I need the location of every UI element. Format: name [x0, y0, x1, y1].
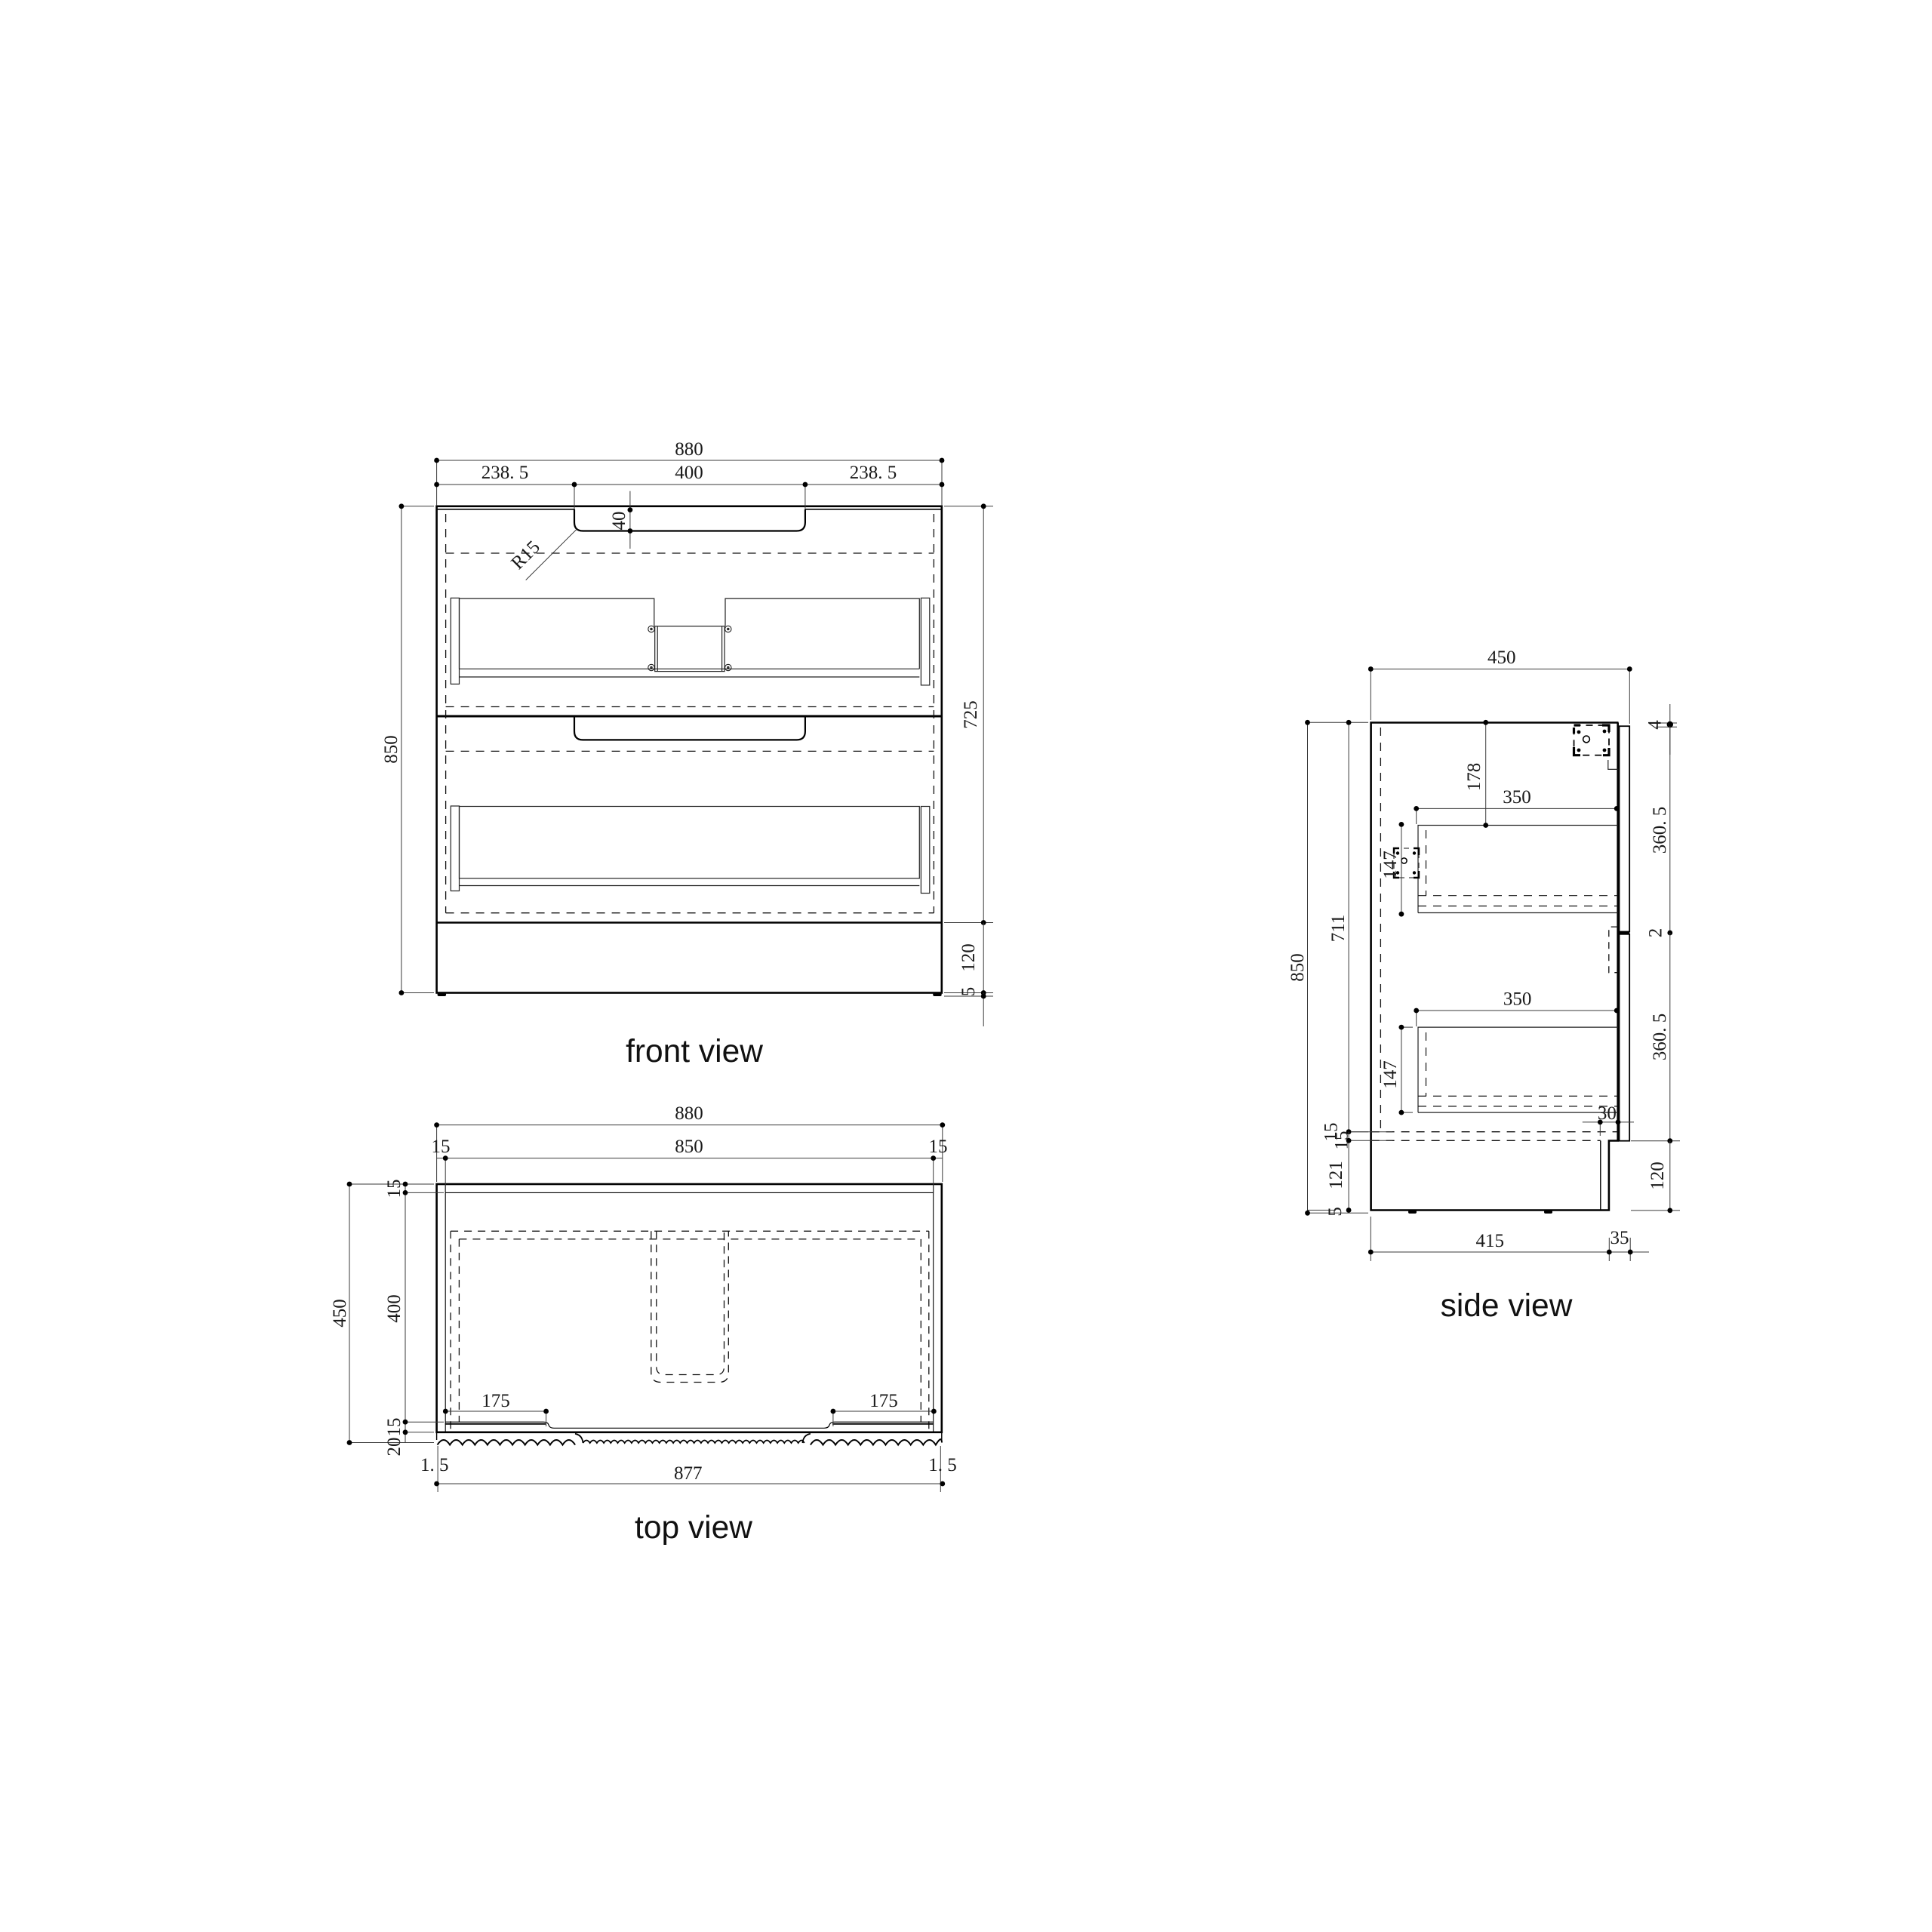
- svg-text:15: 15: [384, 1180, 405, 1198]
- svg-text:415: 415: [1476, 1231, 1505, 1251]
- svg-text:350: 350: [1503, 787, 1531, 808]
- svg-text:40: 40: [609, 512, 629, 531]
- svg-text:450: 450: [1487, 648, 1516, 668]
- svg-text:35: 35: [1611, 1228, 1629, 1248]
- svg-text:360. 5: 360. 5: [1650, 807, 1670, 854]
- svg-text:178: 178: [1464, 763, 1484, 792]
- svg-text:360. 5: 360. 5: [1650, 1014, 1670, 1061]
- svg-text:side view: side view: [1441, 1288, 1573, 1324]
- svg-text:147: 147: [1380, 1060, 1401, 1089]
- svg-text:5: 5: [958, 987, 979, 997]
- svg-text:850: 850: [381, 735, 401, 764]
- svg-text:238. 5: 238. 5: [481, 463, 529, 483]
- svg-text:877: 877: [674, 1463, 703, 1484]
- svg-text:4: 4: [1645, 720, 1666, 730]
- svg-text:15: 15: [432, 1137, 451, 1157]
- svg-text:120: 120: [1647, 1161, 1668, 1190]
- svg-text:top view: top view: [635, 1510, 752, 1546]
- svg-text:450: 450: [330, 1299, 350, 1327]
- svg-text:147: 147: [1380, 851, 1401, 879]
- svg-text:880: 880: [675, 439, 703, 460]
- svg-text:725: 725: [961, 700, 981, 729]
- svg-text:R15: R15: [507, 537, 544, 574]
- svg-text:400: 400: [675, 463, 703, 483]
- svg-text:15: 15: [929, 1137, 948, 1157]
- svg-text:30: 30: [1598, 1103, 1617, 1124]
- svg-text:15: 15: [1332, 1131, 1352, 1150]
- svg-text:1. 5: 1. 5: [928, 1455, 957, 1475]
- svg-text:711: 711: [1328, 915, 1349, 943]
- svg-text:175: 175: [481, 1391, 510, 1411]
- svg-text:238. 5: 238. 5: [850, 463, 897, 483]
- svg-text:880: 880: [675, 1103, 703, 1124]
- svg-text:850: 850: [1287, 953, 1308, 982]
- svg-text:5: 5: [1325, 1207, 1346, 1217]
- svg-text:175: 175: [869, 1391, 898, 1411]
- svg-text:front view: front view: [626, 1034, 763, 1069]
- svg-text:120: 120: [958, 943, 979, 972]
- svg-text:15: 15: [384, 1418, 405, 1437]
- svg-text:20: 20: [384, 1438, 405, 1457]
- svg-text:350: 350: [1503, 989, 1532, 1010]
- svg-text:2: 2: [1646, 928, 1666, 938]
- svg-text:1. 5: 1. 5: [420, 1455, 449, 1475]
- svg-text:400: 400: [384, 1294, 405, 1323]
- svg-text:850: 850: [675, 1137, 703, 1157]
- svg-text:121: 121: [1326, 1161, 1346, 1189]
